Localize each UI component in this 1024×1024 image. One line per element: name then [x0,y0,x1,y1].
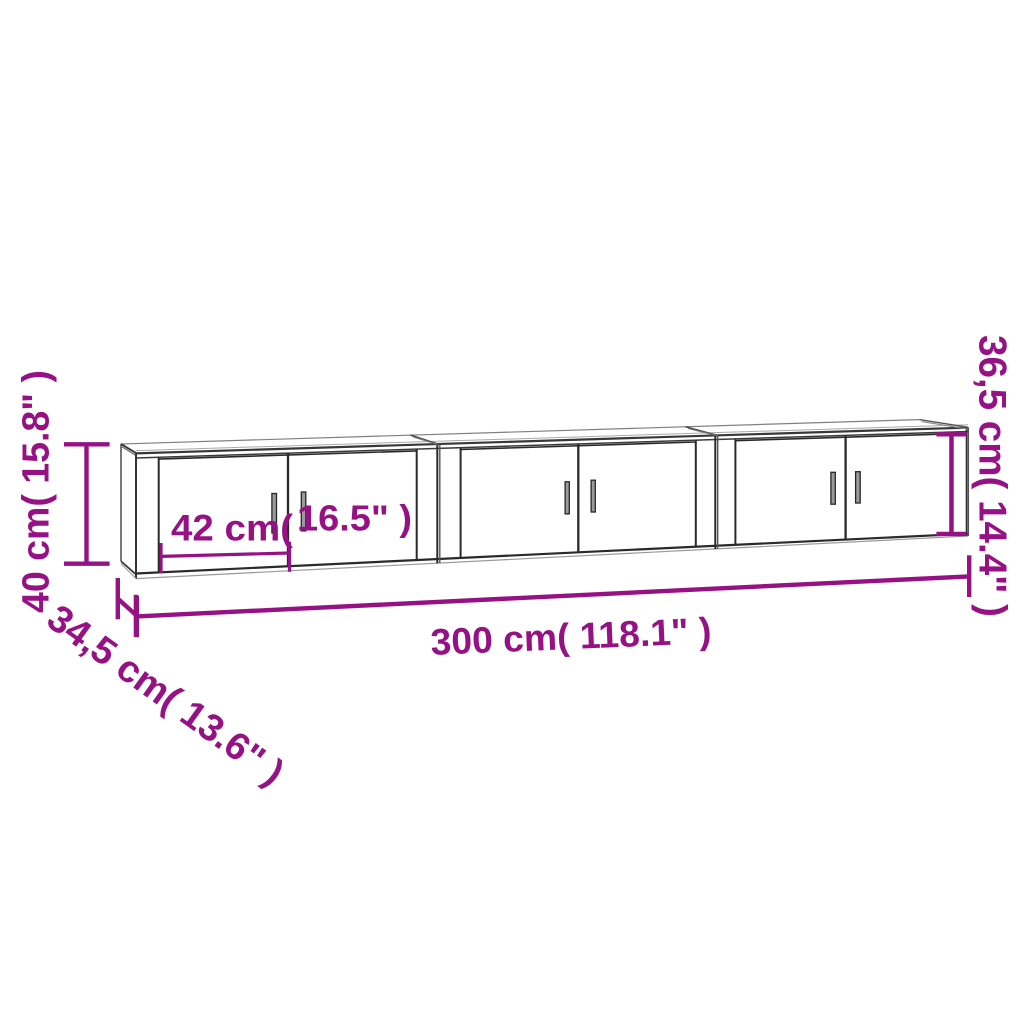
svg-text:40 cm( 15.8" ): 40 cm( 15.8" ) [15,370,57,613]
svg-text:36,5 cm( 14.4" ): 36,5 cm( 14.4" ) [971,335,1014,617]
svg-text:42 cm(: 42 cm( [171,508,294,549]
svg-text:16.5" ): 16.5" ) [297,498,412,539]
